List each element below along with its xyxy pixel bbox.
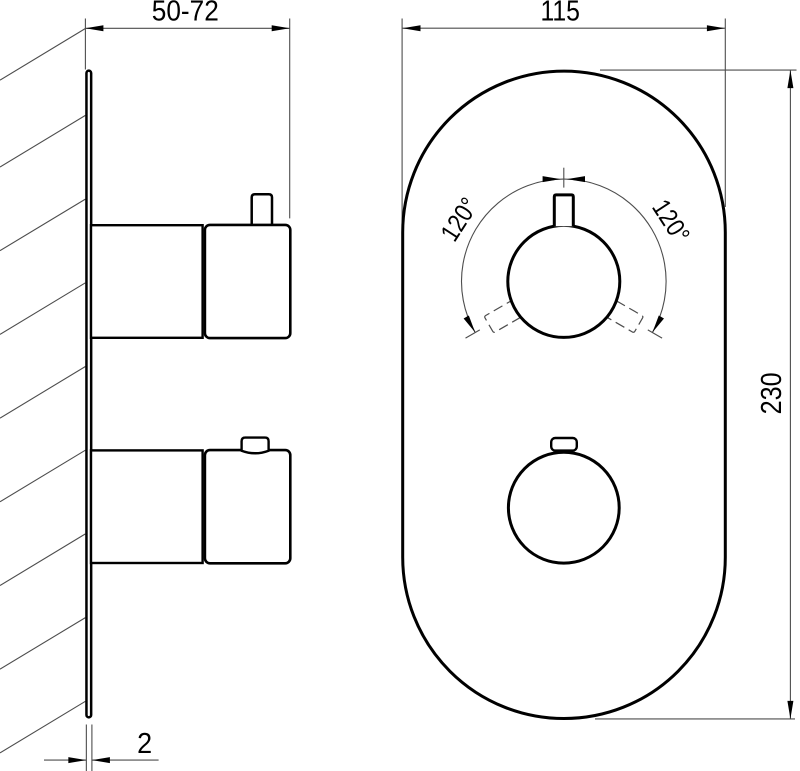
svg-text:230: 230: [756, 372, 788, 414]
svg-text:2: 2: [137, 728, 152, 760]
svg-text:115: 115: [540, 0, 580, 28]
svg-text:50-72: 50-72: [152, 0, 219, 28]
